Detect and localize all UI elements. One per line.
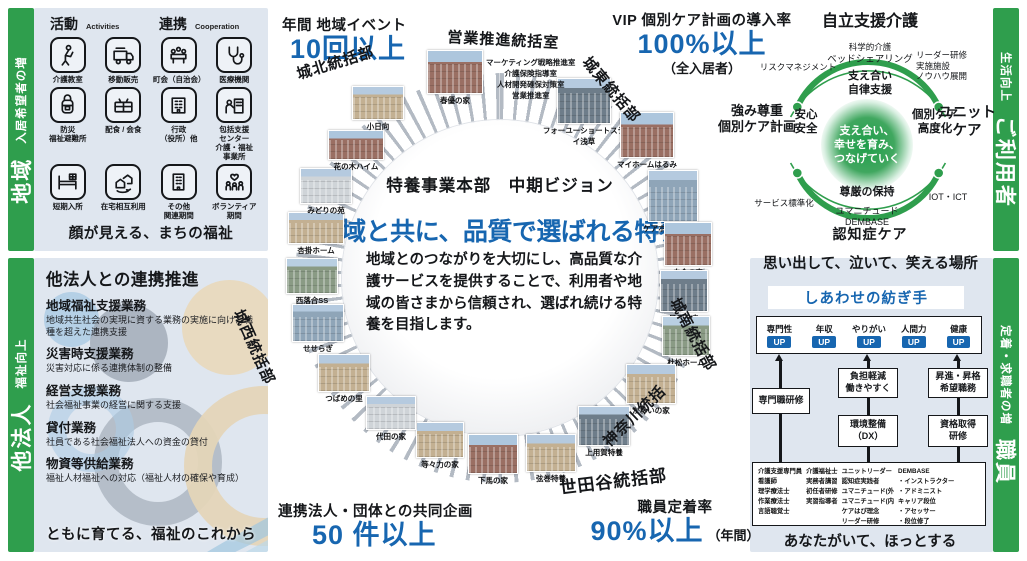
sidebar-region-sub: 入居希望者の増	[13, 56, 29, 144]
partner-section: 地域福祉支援業務地域共生社会の実現に資する業務の実施に向けた職種を超えた連携支援	[46, 295, 256, 338]
region-item: 移動販売	[98, 37, 150, 84]
facility-label: 代田の家	[347, 431, 435, 442]
metric-careplan-label: VIP 個別ケア計画の導入率	[592, 9, 812, 30]
up-badge: UP	[947, 336, 971, 348]
stethoscope-icon	[216, 37, 252, 73]
region-item-label: 防災 福祉避難所	[49, 125, 87, 143]
staff-box-promotion: 昇進・昇格 希望職務	[928, 368, 988, 398]
region-item: 防災 福祉避難所	[42, 87, 94, 161]
facility-photo	[286, 258, 338, 294]
metric-careplan-value: 100%以上	[592, 30, 812, 58]
staff-box-training: 専門職研修	[752, 388, 810, 414]
sidebar-staff-sub: 定着・求職者の増	[998, 325, 1014, 425]
qualification-column: 介護福祉士 実務者講習 初任者研修 実習指導者	[806, 467, 837, 521]
flow-line	[867, 398, 870, 416]
group-activities: 活動 Activities	[42, 14, 151, 34]
bed-icon	[50, 164, 86, 200]
region-item-label: 行政 （役所）他	[160, 125, 198, 143]
ring-label-unit: ユニット ケア	[938, 104, 996, 140]
backpack-icon	[50, 87, 86, 123]
partner-section: 貸付業務社員である社会福祉法人への資金の貸付	[46, 417, 256, 449]
facility-label: みどりの苑	[282, 205, 370, 216]
partner-section: 災害時支援業務災害対応に係る連携体制の整備	[46, 343, 256, 375]
partner-section-desc: 福祉人材福祉への対応（福祉人材の確保や育成）	[46, 473, 256, 485]
group-activities-title: 活動	[50, 14, 78, 34]
facility-photo	[328, 130, 384, 160]
region-item-label: その他 関連期間	[164, 202, 194, 220]
region-item-label: 短期入所	[53, 202, 83, 211]
building-icon	[161, 87, 197, 123]
region-group-headers: 活動 Activities 連携 Cooperation	[42, 14, 260, 34]
metric-careplan: VIP 個別ケア計画の導入率 100%以上 （全入居者）	[592, 9, 812, 77]
sidebar-partner-sub: 福祉向上	[13, 339, 29, 389]
facility-photo	[664, 222, 712, 266]
partner-panel: 他法人との連携推進 地域福祉支援業務地域共生社会の実現に資する業務の実施に向けた…	[34, 258, 268, 552]
ring-core: 支え合い、 幸せを育み、 つなげていく	[821, 99, 913, 191]
sidebar-staff: 定着・求職者の増職員	[993, 258, 1019, 552]
up-column: 人間力UP	[891, 317, 936, 353]
facility-photo	[292, 304, 344, 342]
region-item-label: ボランティア 期間	[212, 202, 257, 220]
up-label: 専門性	[767, 323, 793, 335]
up-column: 年収UP	[802, 317, 847, 353]
metric-retention: 職員定着率 90%以上 （年間）	[560, 496, 790, 545]
facility-label: マイホームはるみ	[603, 159, 691, 170]
group-cooperation: 連携 Cooperation	[151, 14, 260, 34]
flow-line	[867, 447, 870, 463]
facility-photo	[318, 354, 370, 392]
facility-label: つばめの里	[300, 393, 388, 404]
vision-body: 地域とのつながりを大切にし、高品質な介護サービスを提供することで、利用者や地域の…	[366, 250, 642, 337]
ring-label-science: 科学的介護	[820, 42, 920, 53]
exercise-icon	[50, 37, 86, 73]
region-item: 配食 / 会食	[98, 87, 150, 161]
ring-label-iot: IOT・ICT	[918, 192, 978, 203]
ring-core-text: 支え合い、 幸せを育み、 つなげていく	[834, 124, 900, 167]
sales-office-item: マーケティング戦略推進室	[486, 58, 575, 69]
flow-line	[957, 398, 960, 416]
ring-label-dementia: 認知症ケア	[800, 226, 940, 244]
facility-label: 下馬の家	[449, 475, 537, 486]
region-icon-grid: 介護教室移動販売町会（自治会）医療機関防災 福祉避難所配食 / 会食行政 （役所…	[42, 37, 260, 220]
sidebar-partner: 他法人福祉向上	[8, 258, 34, 552]
building2-icon	[161, 164, 197, 200]
metric-retention-value: 90%以上	[590, 517, 703, 545]
up-column: 専門性UP	[757, 317, 802, 353]
metric-retention-note: （年間）	[708, 525, 760, 544]
region-tagline: 顔が見える、まちの福祉	[42, 222, 260, 243]
qualification-column: DEMBASE ・インストラクター ・アドミニスト キャリア段位 ・アセッサー …	[898, 467, 954, 521]
ring-label-anshin: 安心 安全	[786, 108, 826, 137]
facility-label: 西落合SS	[268, 295, 356, 306]
region-item: 介護教室	[42, 37, 94, 84]
group-cooperation-title: 連携	[159, 14, 187, 34]
meal-icon	[105, 87, 141, 123]
region-item-label: 町会（自治会）	[153, 75, 205, 84]
partner-tagline: ともに育てる、福祉のこれから	[34, 523, 268, 544]
sales-office-items: マーケティング戦略推進室介護保険指導室人材開発確保対策室営業推進室	[486, 58, 575, 102]
facility-photo	[648, 170, 698, 222]
metric-retention-label: 職員定着率	[560, 496, 790, 517]
metric-careplan-note: （全入居者）	[592, 58, 812, 77]
region-item-label: 配食 / 会食	[105, 125, 141, 134]
facility-photo	[526, 434, 576, 472]
up-badge: UP	[812, 336, 836, 348]
partner-content: 他法人との連携推進 地域福祉支援業務地域共生社会の実現に資する業務の実施に向けた…	[46, 266, 256, 485]
partner-section: 経営支援業務社会福祉事業の経営に関する支援	[46, 380, 256, 412]
staff-box-dx: 環境整備 （DX）	[838, 415, 898, 447]
facility-photo	[288, 212, 344, 244]
up-badge: UP	[767, 336, 791, 348]
metric-projects-value: 50 件以上	[312, 521, 473, 549]
sidebar-partner-title: 他法人	[6, 403, 36, 472]
partner-section-desc: 地域共生社会の実現に資する業務の実施に向けた職種を超えた連携支援	[46, 315, 256, 338]
region-item: ボランティア 期間	[209, 164, 261, 220]
ring-label-dignity: 尊厳の保持	[812, 186, 922, 200]
region-panel: 活動 Activities 連携 Cooperation 介護教室移動販売町会（…	[34, 8, 268, 251]
group-cooperation-sub: Cooperation	[195, 22, 239, 31]
facility-label: 等々力の家	[396, 459, 484, 470]
partner-sections: 地域福祉支援業務地域共生社会の実現に資する業務の実施に向けた職種を超えた連携支援…	[46, 295, 256, 485]
up-column: 健康UP	[936, 317, 981, 353]
region-item-label: 包括支援 センター 介護・福祉 事業所	[216, 125, 254, 161]
staff-box-burden: 負担軽減 働きやすく	[838, 368, 898, 398]
partner-section-title: 経営支援業務	[46, 380, 256, 399]
facility-photo	[300, 168, 352, 204]
sales-office-item: 介護保険指導室	[486, 69, 575, 80]
up-badge: UP	[902, 336, 926, 348]
up-column: やりがいUP	[847, 317, 892, 353]
flow-line	[779, 414, 782, 462]
metric-events-label: 年間 地域イベント	[282, 14, 407, 35]
facility-photo	[427, 50, 483, 94]
partner-title: 他法人との連携推進	[46, 266, 256, 290]
region-item-label: 在宅相互利用	[101, 202, 146, 211]
facility-label: 花の木ハイム	[312, 161, 400, 172]
partner-section-title: 物資等供給業務	[46, 453, 256, 472]
region-item: 包括支援 センター 介護・福祉 事業所	[209, 87, 261, 161]
sales-office-item: 営業推進室	[486, 91, 575, 102]
region-item-label: 介護教室	[53, 75, 83, 84]
partner-section-title: 地域福祉支援業務	[46, 295, 256, 314]
group-activities-sub: Activities	[86, 22, 119, 31]
sidebar-region: 地域入居希望者の増	[8, 8, 34, 251]
sales-office-item: 人材開発確保対策室	[486, 80, 575, 91]
facility-label: せせらぎ	[274, 343, 362, 354]
partner-section-desc: 社員である社会福祉法人への資金の貸付	[46, 437, 256, 449]
region-item: 在宅相互利用	[98, 164, 150, 220]
meeting-icon	[161, 37, 197, 73]
partner-section: 物資等供給業務福祉人材福祉への対応（福祉人材の確保や育成）	[46, 453, 256, 485]
sidebar-region-title: 地域	[6, 157, 36, 203]
region-item: その他 関連期間	[153, 164, 205, 220]
up-badge: UP	[857, 336, 881, 348]
qualification-column: ユニットリーダー 認知症実践者 ユマニチュード(外 ユマニチュード(内 ケアはぴ…	[842, 467, 894, 521]
region-item: 町会（自治会）	[153, 37, 205, 84]
staff-box-qualification: 資格取得 研修	[928, 415, 988, 447]
sidebar-user-sub: 生活向上	[998, 52, 1014, 102]
partner-section-title: 貸付業務	[46, 417, 256, 436]
sidebar-staff-title: 職員	[991, 439, 1021, 485]
partner-section-title: 災害時支援業務	[46, 343, 256, 362]
food-truck-icon	[105, 37, 141, 73]
staff-title: しあわせの紡ぎ手	[768, 286, 964, 309]
vision-title: 特養事業本部 中期ビジョン	[340, 172, 660, 196]
up-label: 人間力	[901, 323, 927, 335]
metric-projects-label: 連携法人・団体との共同企画	[278, 500, 473, 521]
region-item: 行政 （役所）他	[153, 87, 205, 161]
up-label: 年収	[816, 323, 833, 335]
facility-label: 小日向	[334, 121, 422, 132]
user-tagline: 思い出して、泣いて、笑える場所	[748, 252, 993, 273]
region-item: 医療機関	[209, 37, 261, 84]
flow-line	[779, 360, 782, 388]
sidebar-user: 生活向上ご利用者	[993, 8, 1019, 251]
facility-photo	[352, 86, 404, 120]
house-swap-icon	[105, 164, 141, 200]
facility-label: フォーユーショートステイ浅草	[540, 125, 628, 147]
partner-section-desc: 災害対応に係る連携体制の整備	[46, 363, 256, 375]
ring-label-sasaeai: 支え合い 自律支援	[810, 70, 930, 98]
partner-section-desc: 社会福祉事業の経営に関する支援	[46, 400, 256, 412]
region-item: 短期入所	[42, 164, 94, 220]
metric-projects: 連携法人・団体との共同企画 50 件以上	[278, 500, 473, 549]
division-label: 営業推進統括室	[447, 26, 560, 53]
flow-line	[957, 447, 960, 463]
region-item-label: 移動販売	[108, 75, 138, 84]
support-center-icon	[216, 87, 252, 123]
volunteer-icon	[216, 164, 252, 200]
facility-label: 杏掛ホーム	[272, 245, 360, 256]
region-item-label: 医療機関	[219, 75, 249, 84]
up-label: 健康	[950, 323, 967, 335]
infographic-stage: 地域入居希望者の増 他法人福祉向上 生活向上ご利用者 定着・求職者の増職員 活動…	[0, 0, 1027, 561]
ring-label-jiritsu: 自立支援介護	[795, 12, 945, 32]
staff-up-box: 専門性UP年収UPやりがいUP人間力UP健康UP	[756, 316, 982, 354]
up-label: やりがい	[852, 323, 886, 335]
